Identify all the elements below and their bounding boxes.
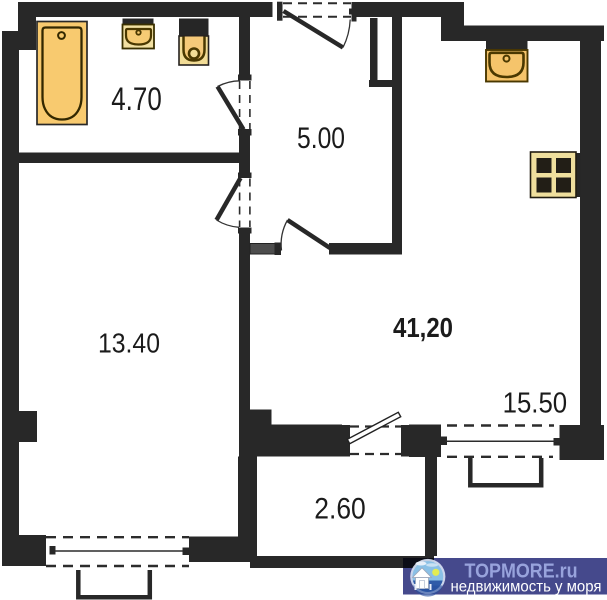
svg-text:5.00: 5.00 — [297, 122, 345, 155]
svg-text:13.40: 13.40 — [98, 328, 160, 359]
svg-text:недвижимость у моря: недвижимость у моря — [451, 579, 602, 596]
svg-text:15.50: 15.50 — [503, 388, 568, 420]
svg-text:4.70: 4.70 — [111, 81, 162, 117]
svg-text:2.60: 2.60 — [314, 493, 366, 526]
svg-text:41,20: 41,20 — [393, 312, 453, 343]
